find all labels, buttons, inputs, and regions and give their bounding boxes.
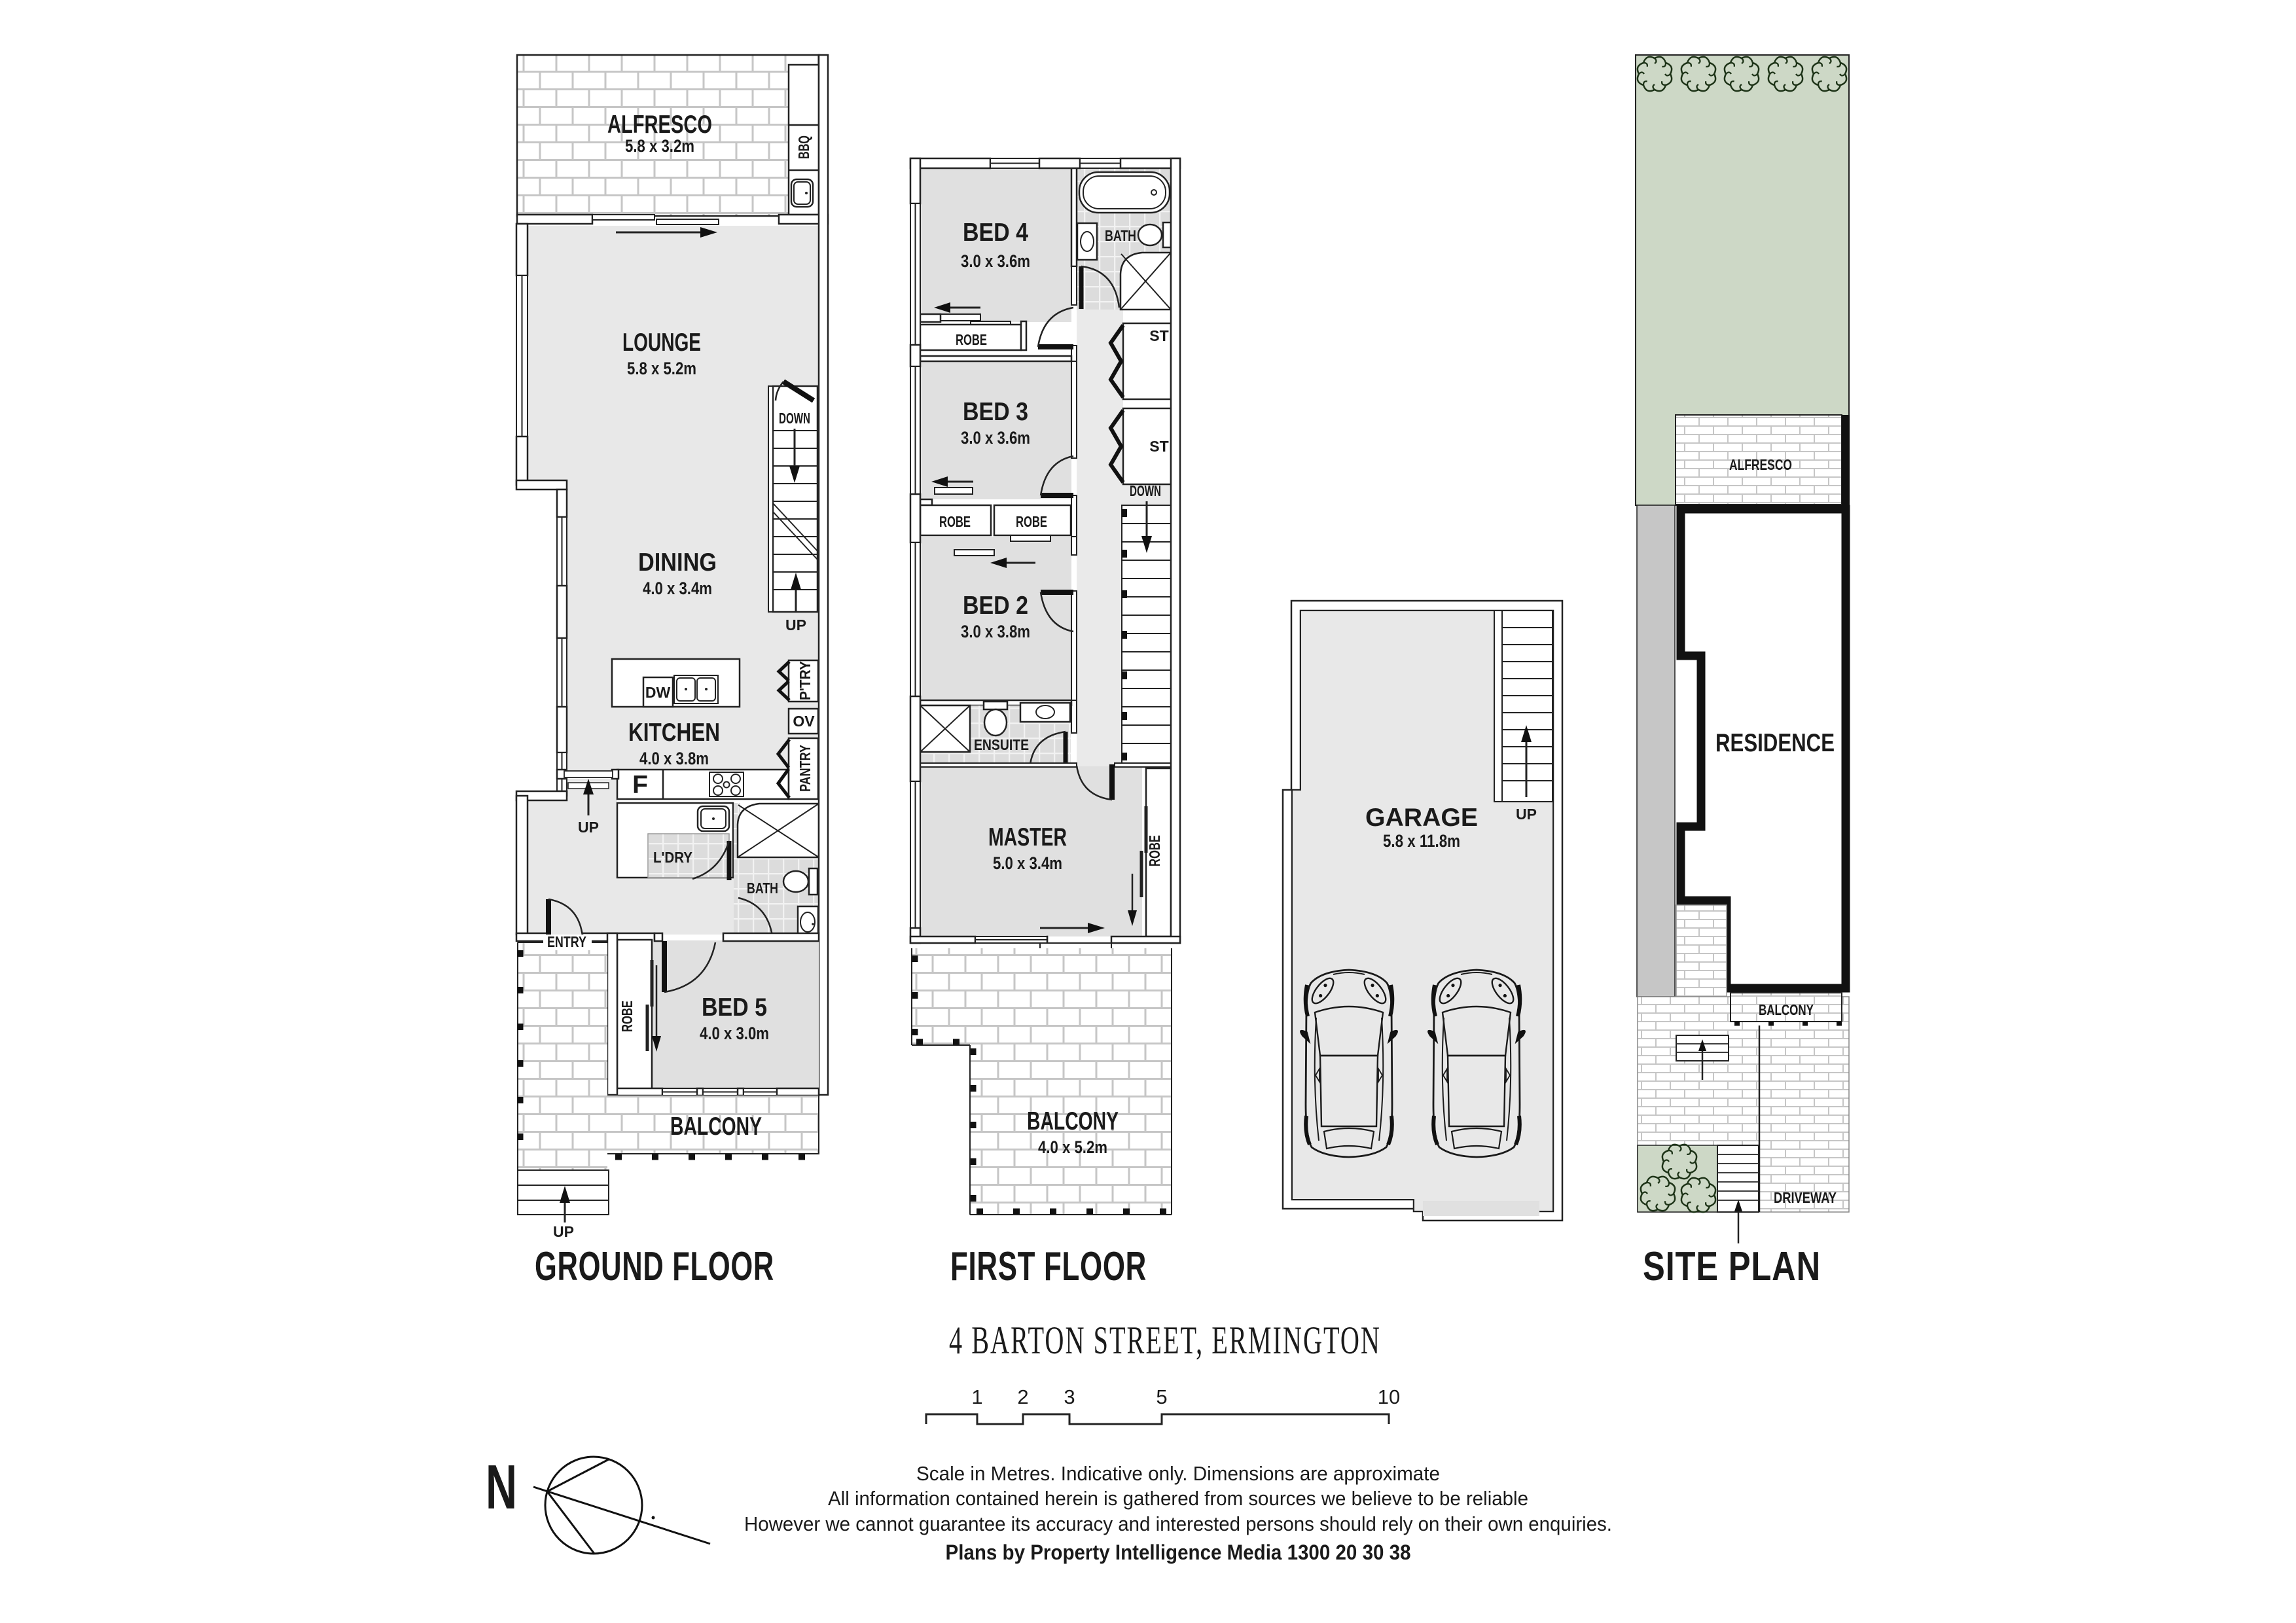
svg-text:UP: UP xyxy=(578,819,599,836)
svg-text:N: N xyxy=(486,1452,517,1522)
svg-text:ALFRESCO: ALFRESCO xyxy=(1729,456,1792,473)
svg-text:FIRST FLOOR: FIRST FLOOR xyxy=(950,1244,1147,1289)
svg-text:3.0 x 3.6m: 3.0 x 3.6m xyxy=(961,428,1030,448)
svg-text:PANTRY: PANTRY xyxy=(797,745,814,792)
svg-text:DOWN: DOWN xyxy=(1130,482,1161,499)
svg-text:KITCHEN: KITCHEN xyxy=(628,719,720,747)
svg-text:5.8 x 11.8m: 5.8 x 11.8m xyxy=(1383,831,1460,851)
svg-text:UP: UP xyxy=(553,1223,574,1240)
svg-text:BATH: BATH xyxy=(1105,227,1136,244)
svg-text:BATH: BATH xyxy=(747,880,778,897)
svg-text:ENTRY: ENTRY xyxy=(547,933,586,950)
svg-text:All information contained here: All information contained herein is gath… xyxy=(828,1487,1528,1510)
svg-text:ROBE: ROBE xyxy=(1016,513,1047,530)
svg-text:BALCONY: BALCONY xyxy=(1759,1001,1814,1018)
svg-text:UP: UP xyxy=(1516,806,1537,823)
svg-text:10: 10 xyxy=(1378,1385,1400,1408)
svg-text:ST: ST xyxy=(1149,327,1168,344)
svg-text:Scale in Metres. Indicative on: Scale in Metres. Indicative only. Dimens… xyxy=(916,1462,1440,1485)
svg-text:5.8 x 5.2m: 5.8 x 5.2m xyxy=(627,359,696,378)
svg-text:BALCONY: BALCONY xyxy=(670,1113,762,1141)
svg-text:OV: OV xyxy=(793,713,815,730)
svg-text:4.0 x 5.2m: 4.0 x 5.2m xyxy=(1038,1137,1107,1157)
svg-text:5: 5 xyxy=(1156,1385,1167,1408)
svg-text:UP: UP xyxy=(785,616,806,633)
svg-text:4.0 x 3.4m: 4.0 x 3.4m xyxy=(643,579,712,598)
svg-text:BED 4: BED 4 xyxy=(963,219,1028,247)
svg-text:5.0 x 3.4m: 5.0 x 3.4m xyxy=(993,853,1062,873)
svg-text:Plans by Property Intelligence: Plans by Property Intelligence Media 130… xyxy=(946,1541,1411,1564)
svg-text:However we cannot guarantee it: However we cannot guarantee its accuracy… xyxy=(744,1512,1612,1535)
svg-text:5.8 x 3.2m: 5.8 x 3.2m xyxy=(625,136,694,156)
svg-text:L'DRY: L'DRY xyxy=(653,849,692,866)
svg-text:ROBE: ROBE xyxy=(939,513,971,530)
svg-text:BBQ: BBQ xyxy=(795,135,812,159)
svg-text:ROBE: ROBE xyxy=(619,1001,636,1032)
svg-text:DRIVEWAY: DRIVEWAY xyxy=(1774,1189,1837,1206)
svg-text:BED 3: BED 3 xyxy=(963,398,1028,426)
svg-text:ST: ST xyxy=(1149,438,1168,455)
svg-text:2: 2 xyxy=(1017,1385,1028,1408)
svg-text:4 BARTON STREET, ERMINGTON: 4 BARTON STREET, ERMINGTON xyxy=(949,1319,1381,1362)
svg-text:BALCONY: BALCONY xyxy=(1027,1107,1119,1135)
svg-text:BED 5: BED 5 xyxy=(702,993,767,1022)
svg-text:ALFRESCO: ALFRESCO xyxy=(607,111,712,139)
svg-text:ENSUITE: ENSUITE xyxy=(974,736,1029,753)
svg-text:MASTER: MASTER xyxy=(988,823,1067,851)
svg-text:SITE PLAN: SITE PLAN xyxy=(1643,1244,1821,1289)
svg-text:4.0 x 3.8m: 4.0 x 3.8m xyxy=(639,749,709,768)
svg-text:4.0 x 3.0m: 4.0 x 3.0m xyxy=(700,1024,769,1043)
svg-text:ROBE: ROBE xyxy=(956,331,987,348)
svg-text:LOUNGE: LOUNGE xyxy=(622,329,701,357)
svg-text:BED 2: BED 2 xyxy=(963,592,1028,620)
svg-text:GARAGE: GARAGE xyxy=(1365,804,1478,832)
svg-text:DOWN: DOWN xyxy=(779,410,810,427)
svg-text:DW: DW xyxy=(645,684,671,701)
svg-text:P'TRY: P'TRY xyxy=(797,661,814,700)
svg-text:3.0 x 3.6m: 3.0 x 3.6m xyxy=(961,251,1030,271)
svg-text:1: 1 xyxy=(971,1385,982,1408)
svg-text:ROBE: ROBE xyxy=(1146,835,1163,866)
svg-text:DINING: DINING xyxy=(638,548,717,577)
svg-text:F: F xyxy=(632,771,648,799)
svg-text:RESIDENCE: RESIDENCE xyxy=(1715,729,1835,757)
svg-text:3.0 x 3.8m: 3.0 x 3.8m xyxy=(961,622,1030,641)
svg-text:3: 3 xyxy=(1064,1385,1075,1408)
svg-text:GROUND FLOOR: GROUND FLOOR xyxy=(535,1244,774,1289)
